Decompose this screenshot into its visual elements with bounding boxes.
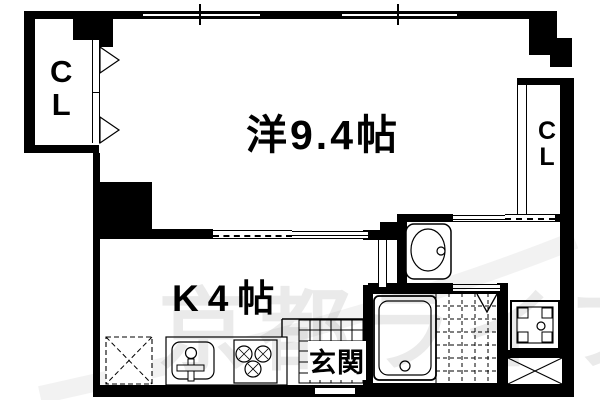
closet-left-label-l: L xyxy=(52,87,71,122)
bathtub-icon xyxy=(374,296,436,380)
closet-left-label-c: C xyxy=(50,54,72,89)
main-room-label: 洋9.4帖 xyxy=(246,101,400,161)
floorplan: 洋9.4帖 K4帖 玄関 C L C L 京都ライフ xyxy=(0,0,600,400)
closet-left-label: C L xyxy=(50,56,72,121)
kitchen-label: K4帖 xyxy=(172,268,283,322)
closet-folding-door-icon xyxy=(100,47,119,143)
washing-machine-icon xyxy=(507,357,563,385)
refrigerator-icon xyxy=(106,337,152,384)
kitchen-sink-icon xyxy=(172,342,214,381)
entrance-label: 玄関 xyxy=(308,341,366,380)
bathroom-tile-floor xyxy=(436,293,500,384)
toilet-icon xyxy=(406,224,451,279)
fixtures-layer xyxy=(0,0,600,400)
closet-right-label: C L xyxy=(538,118,556,171)
closet-right-label-c: C xyxy=(538,117,556,145)
closet-right-label-l: L xyxy=(539,143,554,171)
bathroom-folding-door-icon xyxy=(477,294,497,312)
gas-stove-icon xyxy=(234,340,277,383)
washbasin-icon xyxy=(511,301,559,349)
